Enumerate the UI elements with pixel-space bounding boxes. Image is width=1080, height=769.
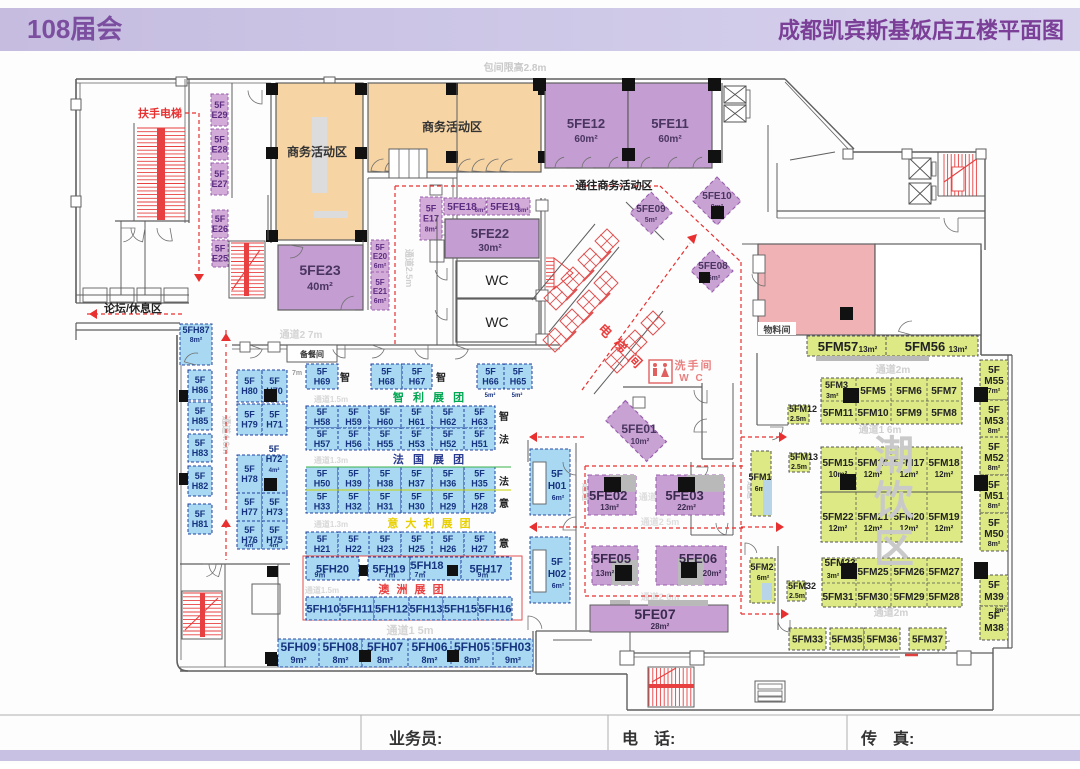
svg-text:5F: 5F [411, 469, 422, 479]
svg-text:5FH18: 5FH18 [410, 560, 443, 572]
svg-text:5FH05: 5FH05 [454, 640, 490, 654]
svg-text:H27: H27 [471, 544, 488, 554]
svg-text:5F: 5F [474, 534, 485, 544]
svg-text:H30: H30 [408, 502, 425, 512]
svg-text:5F: 5F [380, 492, 391, 502]
svg-text:5F: 5F [317, 534, 328, 544]
svg-text:5F: 5F [269, 525, 280, 535]
svg-text:5F: 5F [317, 367, 328, 377]
svg-text:5F: 5F [269, 497, 280, 507]
svg-text:5FE05: 5FE05 [593, 551, 631, 566]
svg-text:通道2m: 通道2m [874, 606, 909, 619]
svg-text:7m²: 7m² [988, 388, 1001, 395]
svg-text:5F: 5F [474, 407, 485, 417]
svg-text:5F: 5F [375, 278, 384, 287]
svg-text:H72: H72 [266, 454, 283, 464]
svg-text:5FE01: 5FE01 [621, 422, 657, 436]
svg-text:10m²: 10m² [631, 437, 650, 446]
svg-text:9m²: 9m² [290, 655, 306, 665]
svg-text:5F: 5F [214, 100, 225, 110]
svg-text:H28: H28 [471, 502, 488, 512]
svg-text:8m²: 8m² [421, 655, 437, 665]
svg-text:WC: WC [485, 272, 508, 288]
svg-text:通道1.3m: 通道1.3m [314, 455, 348, 465]
svg-text:5F: 5F [443, 469, 454, 479]
svg-text:H86: H86 [192, 385, 209, 395]
svg-text:5F: 5F [443, 429, 454, 439]
svg-text:5F: 5F [269, 444, 280, 454]
svg-text:H55: H55 [377, 439, 394, 449]
svg-text:商务活动区: 商务活动区 [422, 119, 482, 134]
svg-text:5F: 5F [195, 375, 206, 385]
svg-text:9m²: 9m² [505, 655, 521, 665]
svg-text:5F: 5F [215, 244, 226, 254]
svg-text:H53: H53 [408, 439, 425, 449]
svg-text:5F: 5F [988, 405, 1000, 416]
svg-text:4m²: 4m² [269, 467, 280, 474]
svg-text:5FE12: 5FE12 [567, 116, 605, 131]
svg-text:5FM19: 5FM19 [928, 512, 960, 523]
svg-text:5F: 5F [474, 429, 485, 439]
svg-text:通道1.3m: 通道1.3m [314, 519, 348, 529]
svg-text:H85: H85 [192, 416, 209, 426]
svg-text:洗手间: 洗手间 [675, 358, 714, 372]
svg-text:M52: M52 [984, 453, 1004, 464]
svg-text:论坛/休息区: 论坛/休息区 [104, 301, 162, 315]
svg-text:澳 洲 展 团: 澳 洲 展 团 [378, 582, 445, 596]
svg-text:E20: E20 [373, 252, 388, 261]
svg-text:5FE19: 5FE19 [490, 202, 520, 213]
svg-text:5FM36: 5FM36 [866, 635, 898, 646]
svg-text:H39: H39 [345, 479, 362, 489]
svg-text:5FM6: 5FM6 [896, 386, 922, 397]
svg-text:5FM12: 5FM12 [789, 404, 817, 414]
svg-text:意: 意 [499, 537, 509, 550]
svg-text:5FH87: 5FH87 [182, 325, 209, 335]
svg-text:12m²: 12m² [935, 524, 954, 533]
svg-text:商务活动区: 商务活动区 [287, 144, 347, 159]
svg-text:5FH03: 5FH03 [495, 640, 531, 654]
svg-text:H35: H35 [471, 479, 488, 489]
svg-text:法 国 展 团: 法 国 展 团 [393, 452, 467, 466]
svg-text:60m²: 60m² [658, 134, 682, 145]
svg-text:5F: 5F [348, 407, 359, 417]
svg-text:20m²: 20m² [703, 569, 722, 578]
svg-text:5F: 5F [485, 367, 496, 377]
svg-text:5F: 5F [244, 410, 255, 420]
svg-text:5F: 5F [348, 429, 359, 439]
svg-text:5F: 5F [988, 365, 1000, 376]
svg-text:H56: H56 [345, 439, 362, 449]
svg-text:5F: 5F [411, 534, 422, 544]
svg-text:5F: 5F [426, 204, 437, 214]
svg-text:5FM2: 5FM2 [750, 562, 773, 572]
svg-text:6m²: 6m² [374, 263, 387, 270]
svg-text:5F: 5F [348, 492, 359, 502]
svg-text:通道4.6m: 通道4.6m [221, 416, 232, 455]
svg-text:13m²: 13m² [596, 569, 615, 578]
svg-text:通道2m: 通道2m [876, 363, 911, 376]
svg-text:5FM11: 5FM11 [823, 408, 854, 419]
svg-text:H21: H21 [314, 544, 331, 554]
svg-text:4㎡: 4㎡ [269, 541, 278, 549]
svg-text:5FM28: 5FM28 [928, 592, 960, 603]
svg-text:9㎡: 9㎡ [315, 570, 326, 579]
svg-text:5FM30: 5FM30 [857, 592, 889, 603]
svg-text:6m²: 6m² [552, 495, 565, 502]
svg-text:6m²: 6m² [518, 207, 529, 214]
svg-text:H82: H82 [192, 481, 209, 491]
svg-text:3m²: 3m² [827, 573, 840, 580]
svg-text:6m²: 6m² [475, 207, 486, 214]
svg-text:H59: H59 [345, 417, 362, 427]
svg-text:5F: 5F [214, 169, 225, 179]
svg-text:5FE09: 5FE09 [636, 204, 666, 215]
svg-text:潮: 潮 [874, 434, 914, 478]
svg-text:5FH16: 5FH16 [478, 603, 511, 615]
svg-text:智 利 展 团: 智 利 展 团 [393, 390, 467, 404]
svg-text:H32: H32 [345, 502, 362, 512]
svg-text:8m²: 8m² [995, 607, 1006, 614]
svg-text:5FE18: 5FE18 [447, 202, 477, 213]
svg-text:5FH07: 5FH07 [367, 640, 403, 654]
svg-text:13m²: 13m² [949, 345, 968, 354]
svg-text:108届会: 108届会 [27, 14, 122, 44]
svg-text:H79: H79 [241, 420, 258, 430]
svg-text:法: 法 [499, 433, 509, 446]
svg-text:13m²: 13m² [859, 345, 878, 354]
svg-text:H68: H68 [378, 377, 395, 387]
svg-text:8m²: 8m² [377, 655, 393, 665]
svg-text:5F: 5F [443, 492, 454, 502]
svg-text:M51: M51 [984, 491, 1004, 502]
svg-text:M50: M50 [984, 529, 1004, 540]
svg-text:5F: 5F [381, 367, 392, 377]
svg-text:H50: H50 [314, 479, 331, 489]
svg-text:5F: 5F [195, 471, 206, 481]
svg-text:业务员:: 业务员: [389, 729, 442, 748]
svg-text:7㎡: 7㎡ [415, 570, 426, 579]
svg-text:5F: 5F [443, 407, 454, 417]
svg-text:5F: 5F [244, 525, 255, 535]
svg-text:5F: 5F [375, 243, 384, 252]
svg-text:H29: H29 [440, 502, 457, 512]
svg-text:电 话:: 电 话: [622, 729, 675, 748]
svg-text:H36: H36 [440, 479, 457, 489]
svg-text:W C: W C [679, 373, 704, 384]
svg-text:8m²: 8m² [988, 503, 1001, 510]
svg-text:5FM7: 5FM7 [931, 386, 957, 397]
svg-text:5FH10: 5FH10 [306, 603, 339, 615]
svg-text:5FH09: 5FH09 [280, 640, 316, 654]
svg-text:H62: H62 [440, 417, 457, 427]
svg-text:5FM10: 5FM10 [857, 408, 889, 419]
svg-text:E25: E25 [212, 254, 228, 264]
svg-text:5FM56: 5FM56 [905, 339, 945, 354]
svg-text:5FH13: 5FH13 [409, 603, 442, 615]
svg-text:M39: M39 [984, 592, 1004, 603]
svg-text:H61: H61 [408, 417, 425, 427]
svg-text:H26: H26 [440, 544, 457, 554]
svg-text:5F: 5F [411, 492, 422, 502]
svg-text:7㎡: 7㎡ [385, 570, 396, 579]
svg-text:5FM32: 5FM32 [788, 581, 816, 591]
svg-text:5FM57: 5FM57 [818, 339, 858, 354]
svg-text:H66: H66 [482, 377, 499, 387]
svg-text:成都凯宾斯基饭店五楼平面图: 成都凯宾斯基饭店五楼平面图 [778, 18, 1064, 43]
svg-text:5F: 5F [214, 135, 225, 145]
svg-text:通往商务活动区: 通往商务活动区 [576, 178, 653, 192]
svg-text:意: 意 [499, 497, 509, 510]
svg-text:5F: 5F [988, 580, 1000, 591]
svg-text:8m²: 8m² [425, 227, 438, 234]
svg-text:5FM35: 5FM35 [831, 635, 863, 646]
svg-text:40m²: 40m² [307, 281, 333, 293]
svg-text:4㎡: 4㎡ [244, 541, 253, 549]
svg-text:备餐间: 备餐间 [299, 349, 324, 359]
svg-text:6m²: 6m² [552, 583, 565, 590]
svg-text:M53: M53 [984, 416, 1004, 427]
svg-text:H63: H63 [471, 417, 488, 427]
svg-text:E26: E26 [212, 224, 228, 234]
svg-text:30m²: 30m² [478, 243, 502, 254]
svg-text:5F: 5F [474, 469, 485, 479]
svg-text:H80: H80 [241, 386, 258, 396]
svg-text:2.5m: 2.5m [791, 464, 807, 471]
svg-text:扶手电梯: 扶手电梯 [138, 106, 182, 120]
svg-text:5F: 5F [443, 534, 454, 544]
svg-text:8m²: 8m² [988, 428, 1001, 435]
svg-text:H38: H38 [377, 479, 394, 489]
svg-text:9㎡: 9㎡ [478, 570, 489, 579]
svg-text:5F: 5F [317, 492, 328, 502]
svg-text:WC: WC [485, 314, 508, 330]
svg-text:5F: 5F [412, 367, 423, 377]
svg-text:H37: H37 [408, 479, 425, 489]
svg-text:6m²: 6m² [757, 575, 770, 582]
svg-text:5FE07: 5FE07 [634, 606, 675, 622]
svg-text:H33: H33 [314, 502, 331, 512]
svg-text:2.5m: 2.5m [789, 593, 805, 600]
svg-text:8m²: 8m² [988, 541, 1001, 548]
svg-text:5F: 5F [195, 406, 206, 416]
svg-text:8m²: 8m² [464, 655, 480, 665]
svg-text:5FM9: 5FM9 [896, 408, 922, 419]
svg-text:H67: H67 [409, 377, 426, 387]
svg-text:6m²: 6m² [374, 298, 387, 305]
svg-text:H31: H31 [377, 502, 394, 512]
svg-text:5F: 5F [380, 534, 391, 544]
svg-text:5FM33: 5FM33 [792, 635, 824, 646]
svg-text:法: 法 [499, 475, 509, 488]
svg-text:E21: E21 [373, 287, 388, 296]
svg-text:5F: 5F [348, 534, 359, 544]
svg-text:5F: 5F [317, 429, 328, 439]
svg-text:5FM29: 5FM29 [893, 592, 925, 603]
svg-text:5F: 5F [551, 557, 563, 568]
svg-text:M38: M38 [984, 623, 1004, 634]
svg-text:8m²: 8m² [988, 465, 1001, 472]
svg-text:H02: H02 [548, 569, 567, 580]
svg-text:5F: 5F [380, 469, 391, 479]
svg-text:H81: H81 [192, 519, 209, 529]
svg-text:5F: 5F [988, 442, 1000, 453]
svg-text:5FM13: 5FM13 [790, 452, 818, 462]
svg-text:5F: 5F [244, 497, 255, 507]
svg-text:5F: 5F [195, 509, 206, 519]
svg-text:5F: 5F [380, 429, 391, 439]
svg-text:H71: H71 [266, 420, 283, 430]
svg-text:22m²: 22m² [677, 503, 696, 512]
svg-text:5FH11: 5FH11 [341, 603, 373, 615]
svg-text:5F: 5F [317, 469, 328, 479]
svg-text:M55: M55 [984, 376, 1004, 387]
svg-text:通道2.5m: 通道2.5m [404, 249, 415, 288]
svg-text:区: 区 [874, 527, 914, 571]
svg-text:5F: 5F [195, 438, 206, 448]
svg-text:7m: 7m [292, 370, 302, 377]
svg-text:H51: H51 [471, 439, 488, 449]
svg-text:E28: E28 [211, 145, 227, 155]
svg-text:饮: 饮 [874, 479, 915, 523]
svg-text:5FM8: 5FM8 [931, 408, 957, 419]
svg-text:5FH15: 5FH15 [444, 603, 477, 615]
svg-text:5F: 5F [269, 376, 280, 386]
svg-text:包间限高2.8m: 包间限高2.8m [484, 61, 547, 74]
svg-text:5F: 5F [380, 407, 391, 417]
svg-text:8m²: 8m² [190, 337, 203, 344]
svg-text:H73: H73 [266, 507, 283, 517]
svg-text:13m²: 13m² [600, 503, 619, 512]
svg-text:H78: H78 [241, 474, 258, 484]
svg-text:5FM18: 5FM18 [928, 458, 960, 469]
svg-text:5F: 5F [348, 469, 359, 479]
svg-text:5F: 5F [411, 429, 422, 439]
svg-text:5F: 5F [411, 407, 422, 417]
svg-text:H23: H23 [377, 544, 394, 554]
svg-text:通道2 5m: 通道2 5m [641, 516, 680, 527]
svg-text:5F: 5F [551, 469, 563, 480]
svg-text:5m²: 5m² [485, 392, 496, 399]
svg-text:5FH06: 5FH06 [411, 640, 447, 654]
svg-text:H52: H52 [440, 439, 457, 449]
svg-text:H83: H83 [192, 448, 209, 458]
svg-text:12m²: 12m² [829, 524, 848, 533]
svg-text:5F: 5F [513, 367, 524, 377]
svg-text:5FM27: 5FM27 [928, 567, 960, 578]
svg-text:H57: H57 [314, 439, 331, 449]
svg-text:H58: H58 [314, 417, 331, 427]
svg-text:5m²: 5m² [645, 217, 658, 224]
svg-text:5FH08: 5FH08 [322, 640, 358, 654]
svg-text:通道1 5m: 通道1 5m [386, 623, 433, 637]
svg-text:智: 智 [340, 371, 350, 384]
svg-text:H69: H69 [314, 377, 331, 387]
svg-text:5FH12: 5FH12 [375, 603, 408, 615]
svg-text:5FM15: 5FM15 [822, 458, 854, 469]
svg-text:5F: 5F [988, 518, 1000, 529]
svg-text:5F: 5F [244, 464, 255, 474]
svg-text:5FM5: 5FM5 [860, 386, 886, 397]
svg-text:5F: 5F [269, 410, 280, 420]
svg-text:60m²: 60m² [574, 134, 598, 145]
svg-text:5FE23: 5FE23 [299, 262, 340, 278]
svg-text:通道1.5m: 通道1.5m [305, 585, 339, 595]
svg-text:H77: H77 [241, 507, 258, 517]
svg-text:5FM37: 5FM37 [912, 635, 944, 646]
svg-text:28m²: 28m² [651, 622, 670, 631]
svg-text:H65: H65 [510, 377, 527, 387]
svg-text:8m²: 8m² [332, 655, 348, 665]
svg-text:H01: H01 [548, 481, 567, 492]
svg-text:E29: E29 [211, 110, 227, 120]
svg-text:传 真:: 传 真: [860, 729, 914, 748]
svg-text:E27: E27 [211, 179, 227, 189]
svg-text:通道2 7m: 通道2 7m [280, 328, 323, 341]
svg-text:5FE10: 5FE10 [702, 191, 732, 202]
svg-text:H25: H25 [408, 544, 425, 554]
svg-text:5F: 5F [474, 492, 485, 502]
svg-text:通道1.5m: 通道1.5m [314, 394, 348, 404]
svg-text:5FM31: 5FM31 [822, 592, 854, 603]
svg-text:智: 智 [499, 410, 509, 423]
svg-text:H22: H22 [345, 544, 362, 554]
svg-text:5FE22: 5FE22 [471, 226, 509, 241]
svg-text:2.5m: 2.5m [790, 416, 806, 423]
svg-text:5F: 5F [215, 214, 226, 224]
svg-text:3m²: 3m² [826, 393, 839, 400]
svg-text:智: 智 [436, 371, 446, 384]
svg-text:H60: H60 [377, 417, 394, 427]
svg-text:5F: 5F [988, 480, 1000, 491]
svg-text:物料间: 物料间 [763, 324, 790, 335]
svg-text:5FM22: 5FM22 [822, 512, 854, 523]
svg-text:5FE11: 5FE11 [651, 116, 689, 131]
svg-text:意 大 利 展 团: 意 大 利 展 团 [387, 516, 472, 530]
svg-text:5m²: 5m² [512, 392, 523, 399]
svg-text:12m²: 12m² [935, 470, 954, 479]
svg-text:5F: 5F [317, 407, 328, 417]
svg-text:5FE08: 5FE08 [698, 261, 728, 272]
svg-text:5F: 5F [244, 376, 255, 386]
